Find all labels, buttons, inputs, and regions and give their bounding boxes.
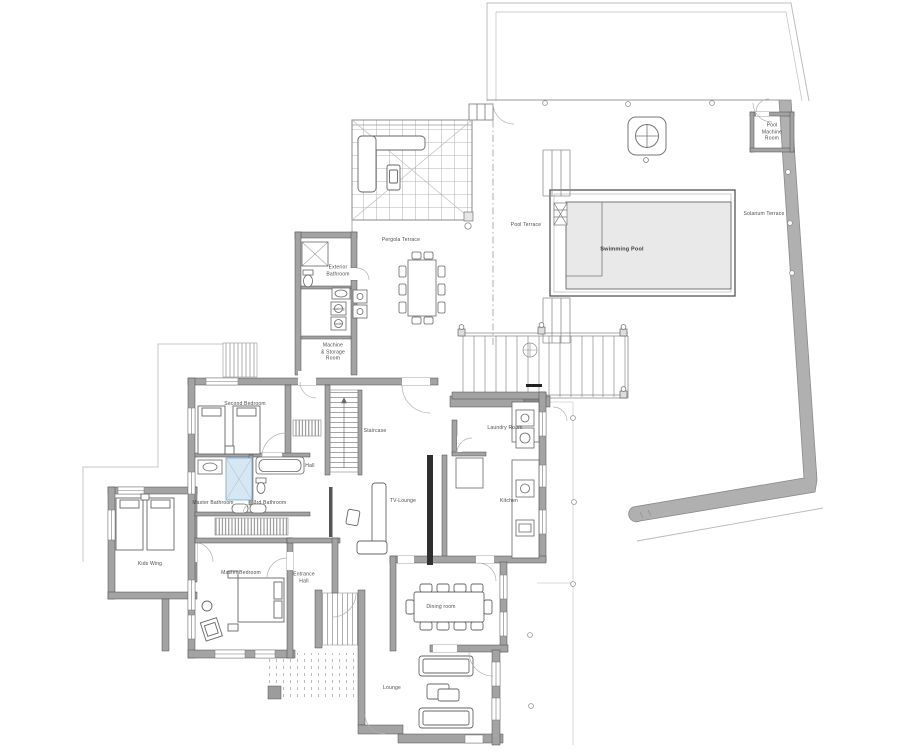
swimming-pool-shape [550,190,735,296]
kids-wing-building [108,487,213,651]
third-bathroom-fixtures [256,457,304,494]
floor-plan-canvas: Second Bedroom Staircase Hall Laundry Ro… [0,0,900,752]
tv-lounge-feature-wall [427,455,433,565]
exterior-steps-north [223,343,257,377]
second-bedroom-furniture [198,406,260,454]
lounge-furniture [419,656,473,728]
master-bedroom-furniture [200,571,284,641]
boundary-wall [629,100,817,522]
pool-steps [554,203,567,225]
terrace-dining-table [399,252,445,324]
exterior-bathroom-fixtures [302,242,350,299]
kitchen-fixtures [456,402,539,558]
pergola [352,120,473,229]
laundry-fixtures [516,428,534,448]
floor-plan-drawing [0,0,900,752]
patio-dotted [266,653,358,699]
wardrobe [215,518,288,535]
planter-boxes [469,104,493,120]
hall-closet [293,420,321,436]
site-boundary-fence-top [487,3,809,101]
interior-staircase [330,390,358,472]
kids-beds [116,494,174,550]
terrace-feature [628,117,666,162]
dining-furniture [406,584,492,630]
site-boundary-bottom-right [537,402,823,745]
exterior-steps-entrance [315,590,358,648]
